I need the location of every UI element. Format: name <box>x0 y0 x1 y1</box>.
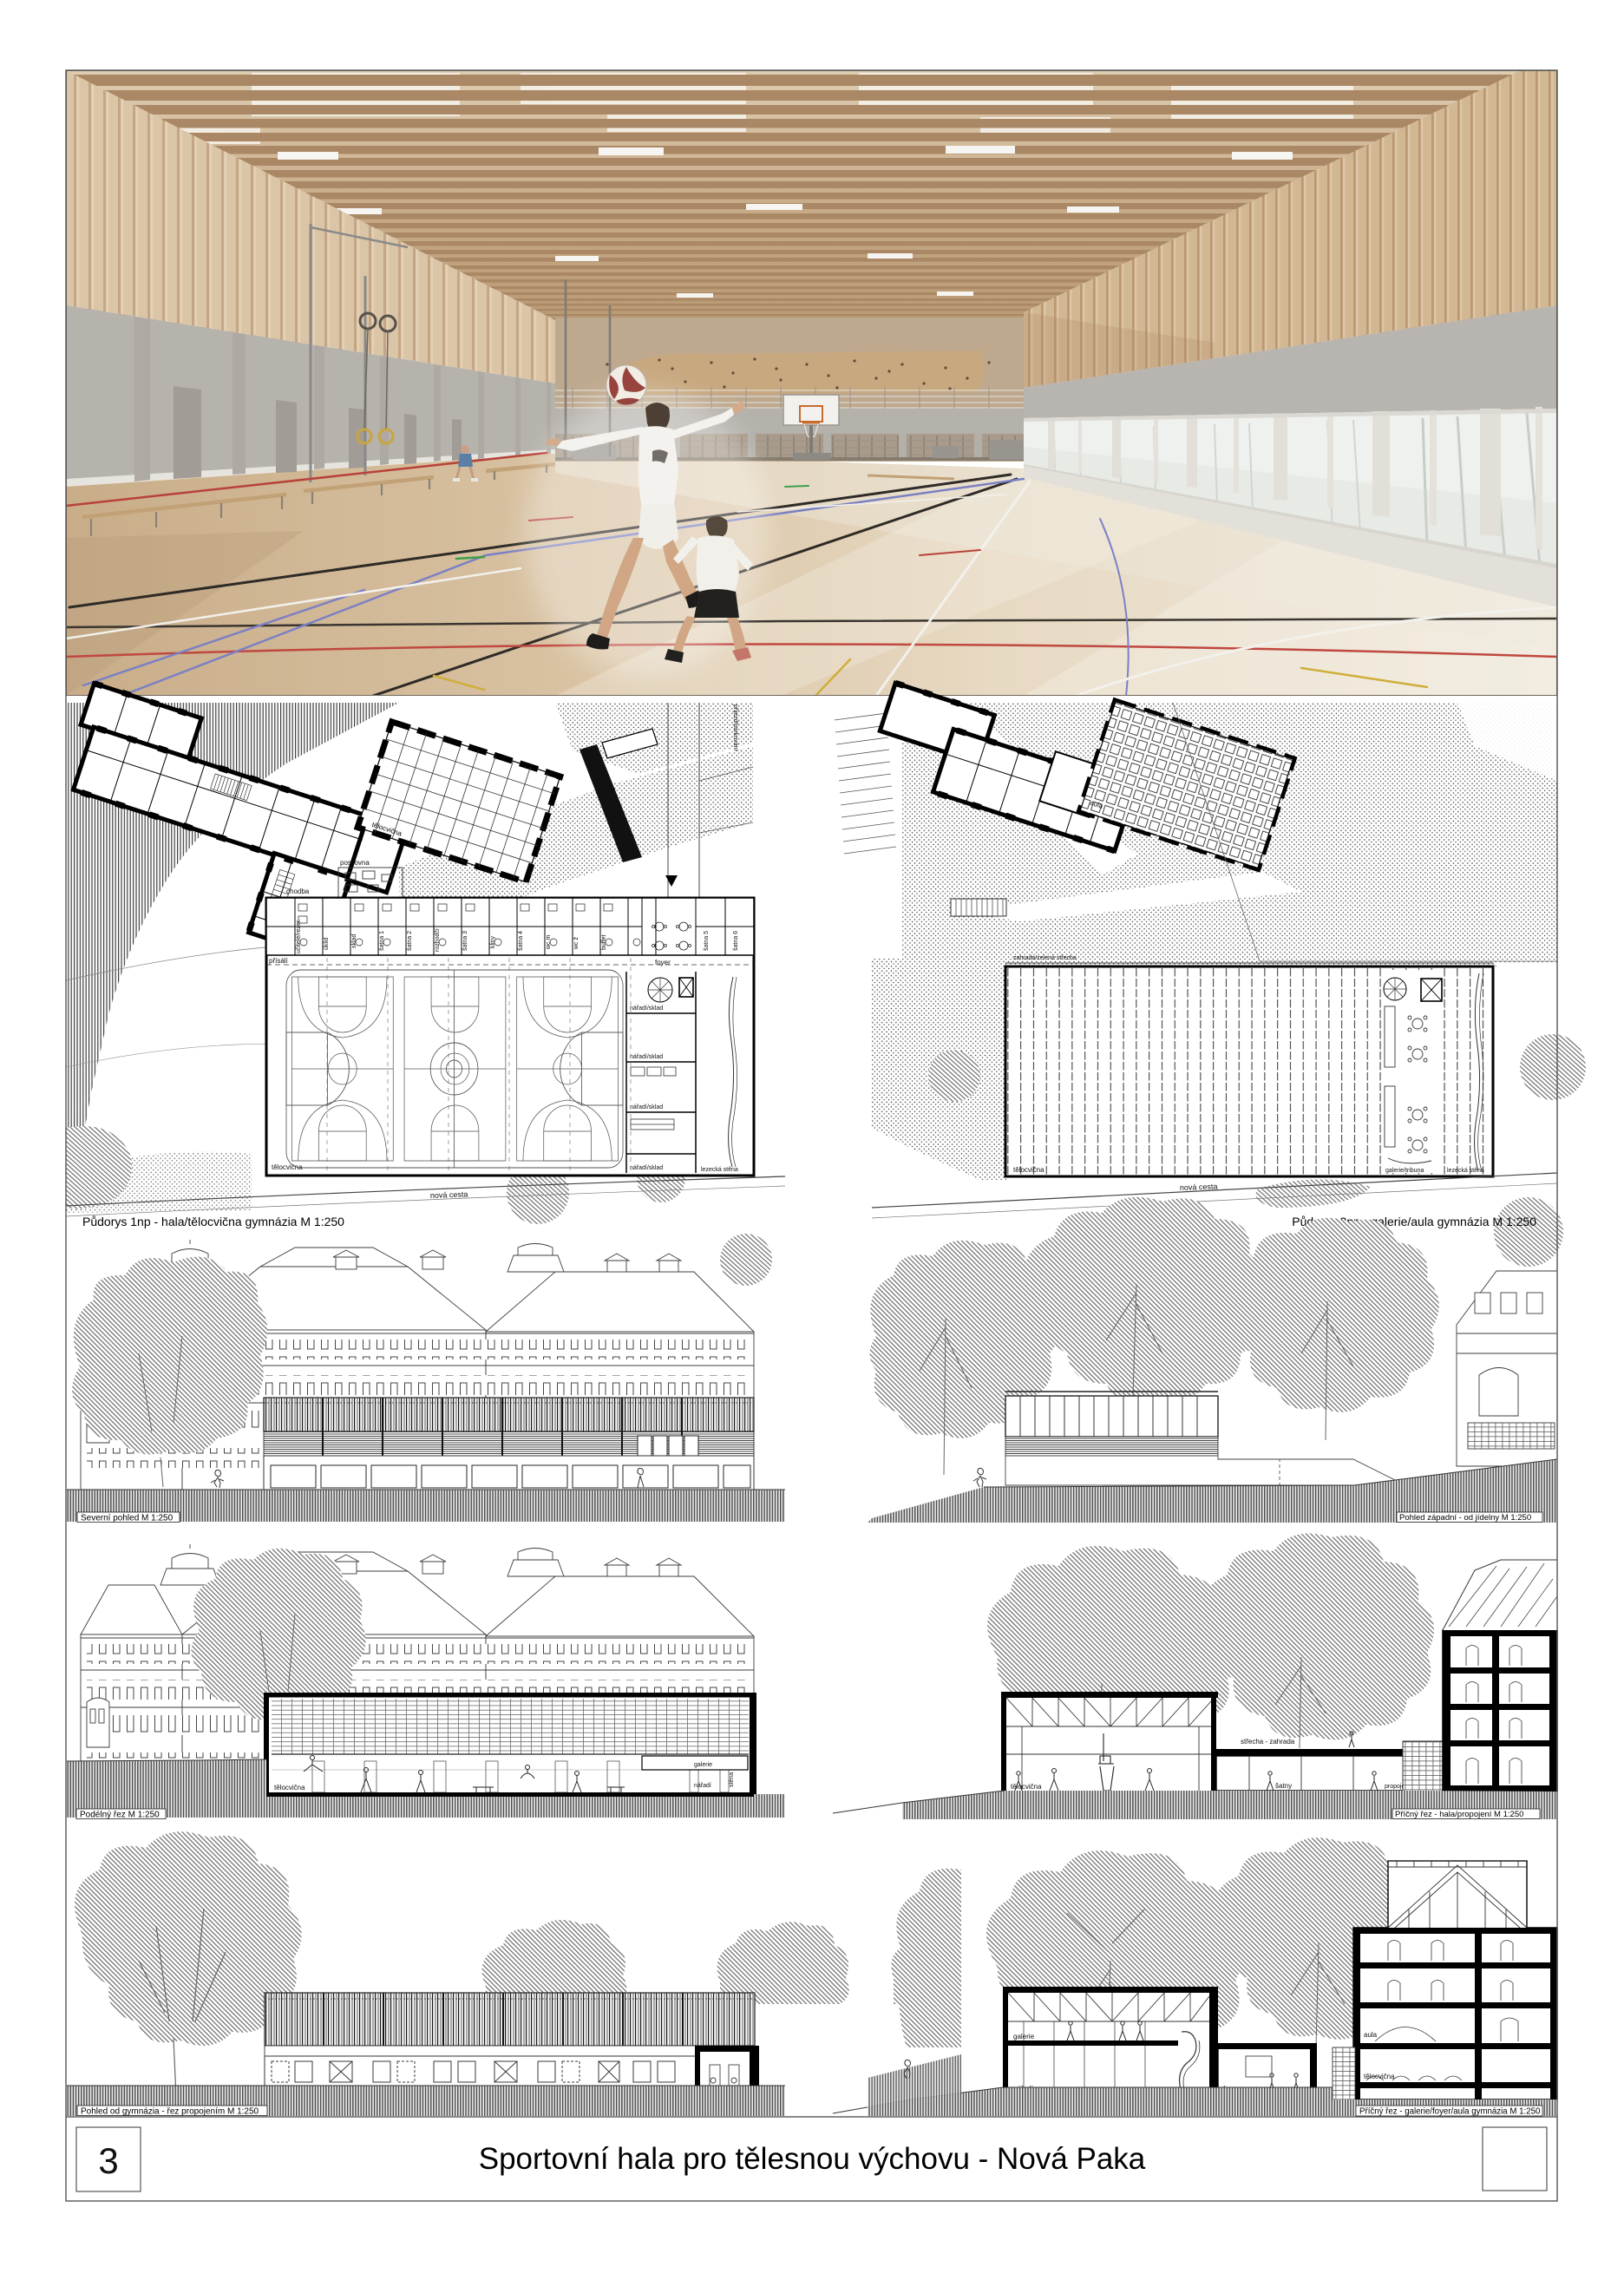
svg-text:šatna 3: šatna 3 <box>462 931 468 951</box>
svg-text:Příčný řez - hala/propojení M: Příčný řez - hala/propojení M 1:250 <box>1395 1810 1523 1819</box>
svg-text:sklad: sklad <box>351 934 357 948</box>
svg-text:Pohled od gymnázia - řez propo: Pohled od gymnázia - řez propojením M 1:… <box>81 2106 259 2116</box>
svg-text:přísálí: přísálí <box>269 957 289 965</box>
svg-text:galerie: galerie <box>1013 2033 1035 2040</box>
svg-text:Sportovní hala pro tělesnou vý: Sportovní hala pro tělesnou výchovu - No… <box>479 2142 1146 2176</box>
svg-text:wc m: wc m <box>546 935 552 951</box>
svg-text:nová cesta: nová cesta <box>430 1189 468 1200</box>
svg-text:kliny: kliny <box>490 935 496 948</box>
svg-text:rozhodčí: rozhodčí <box>435 928 441 952</box>
svg-text:Pohled západní - od jídelny M: Pohled západní - od jídelny M 1:250 <box>1399 1513 1531 1523</box>
svg-text:střecha - zahrada: střecha - zahrada <box>1241 1738 1295 1746</box>
svg-text:Podélný řez M 1:250: Podélný řez M 1:250 <box>80 1810 160 1819</box>
svg-text:přijezd/parkování: přijezd/parkování <box>732 704 738 750</box>
svg-text:šatna 4: šatna 4 <box>518 931 524 951</box>
svg-text:3: 3 <box>98 2140 118 2181</box>
svg-text:šatna 2: šatna 2 <box>407 931 413 951</box>
svg-text:tělocvična: tělocvična <box>1364 2073 1395 2080</box>
svg-text:lezecká stěna: lezecká stěna <box>1447 1168 1484 1174</box>
svg-text:lezecká stěna: lezecká stěna <box>701 1167 738 1173</box>
svg-text:galerie/tribuna: galerie/tribuna <box>1385 1168 1424 1174</box>
svg-text:stěna: stěna <box>729 1772 735 1787</box>
svg-text:tělocvična: tělocvična <box>1013 1166 1044 1174</box>
svg-text:šatny: šatny <box>1275 1782 1292 1790</box>
svg-text:tělocvična: tělocvična <box>274 1784 305 1792</box>
svg-text:úklid: úklid <box>324 937 330 950</box>
svg-text:nářadí: nářadí <box>694 1783 711 1789</box>
svg-text:šatna 1: šatna 1 <box>379 931 385 951</box>
svg-text:zahrada/zelená střecha: zahrada/zelená střecha <box>1013 955 1077 961</box>
svg-text:nářadí/sklad: nářadí/sklad <box>630 1005 663 1012</box>
svg-text:tělocvična: tělocvična <box>1011 1783 1042 1791</box>
svg-text:foyer: foyer <box>655 959 671 966</box>
svg-text:šatna 6: šatna 6 <box>733 931 739 951</box>
svg-text:šatna 5: šatna 5 <box>704 931 710 951</box>
svg-text:Půdorys 1np - hala/tělocvična: Půdorys 1np - hala/tělocvična gymnázia M… <box>82 1215 344 1228</box>
svg-text:nářadí/sklad: nářadí/sklad <box>630 1054 663 1060</box>
svg-text:galerie: galerie <box>694 1762 712 1768</box>
svg-text:Příčný řez - galerie/foyer/aul: Příčný řez - galerie/foyer/aula gymnázia… <box>1359 2107 1541 2117</box>
svg-text:nářadí/sklad: nářadí/sklad <box>630 1165 663 1171</box>
svg-text:nová cesta: nová cesta <box>1180 1182 1218 1192</box>
svg-text:buffet: buffet <box>601 935 607 950</box>
svg-text:wc ž: wc ž <box>573 937 580 951</box>
svg-text:posilovna: posilovna <box>340 859 370 867</box>
svg-text:Severní pohled M 1:250: Severní pohled M 1:250 <box>81 1513 174 1523</box>
svg-text:nářadí/sklad: nářadí/sklad <box>630 1104 663 1110</box>
svg-text:učitelé/rezer.: učitelé/rezer. <box>296 919 302 953</box>
svg-text:chodba: chodba <box>286 888 310 895</box>
svg-text:aula: aula <box>1364 2031 1378 2039</box>
